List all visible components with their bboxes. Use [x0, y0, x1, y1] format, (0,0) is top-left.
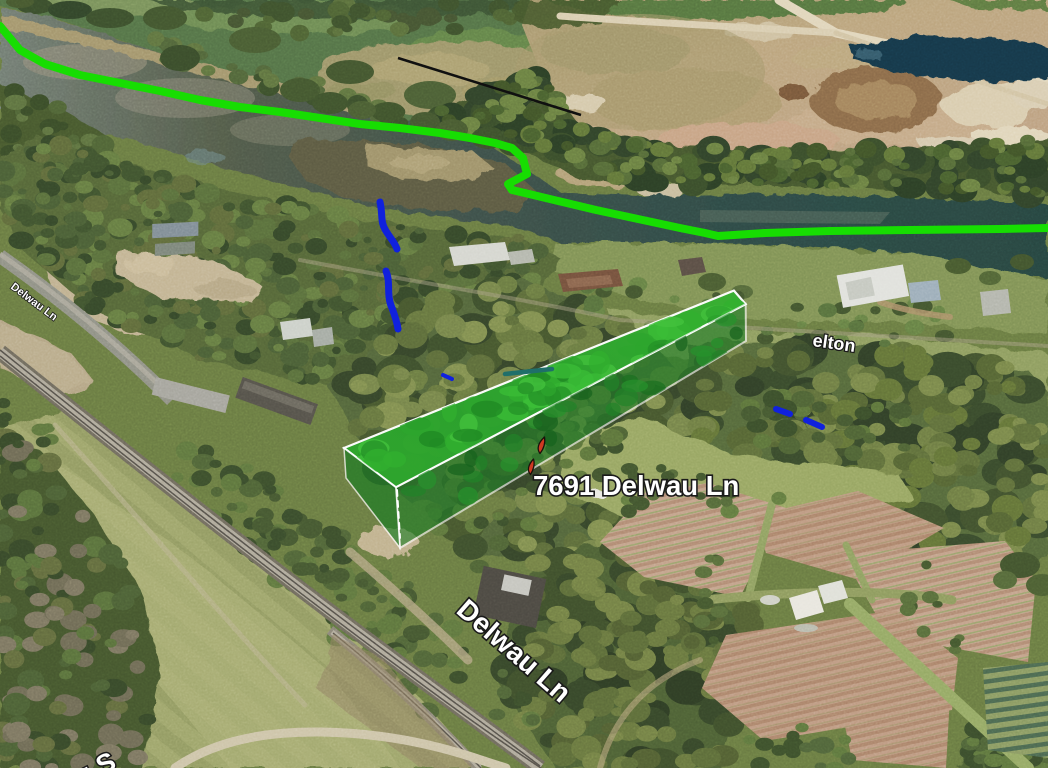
svg-text:7691 Delwau Ln: 7691 Delwau Ln	[533, 470, 739, 501]
